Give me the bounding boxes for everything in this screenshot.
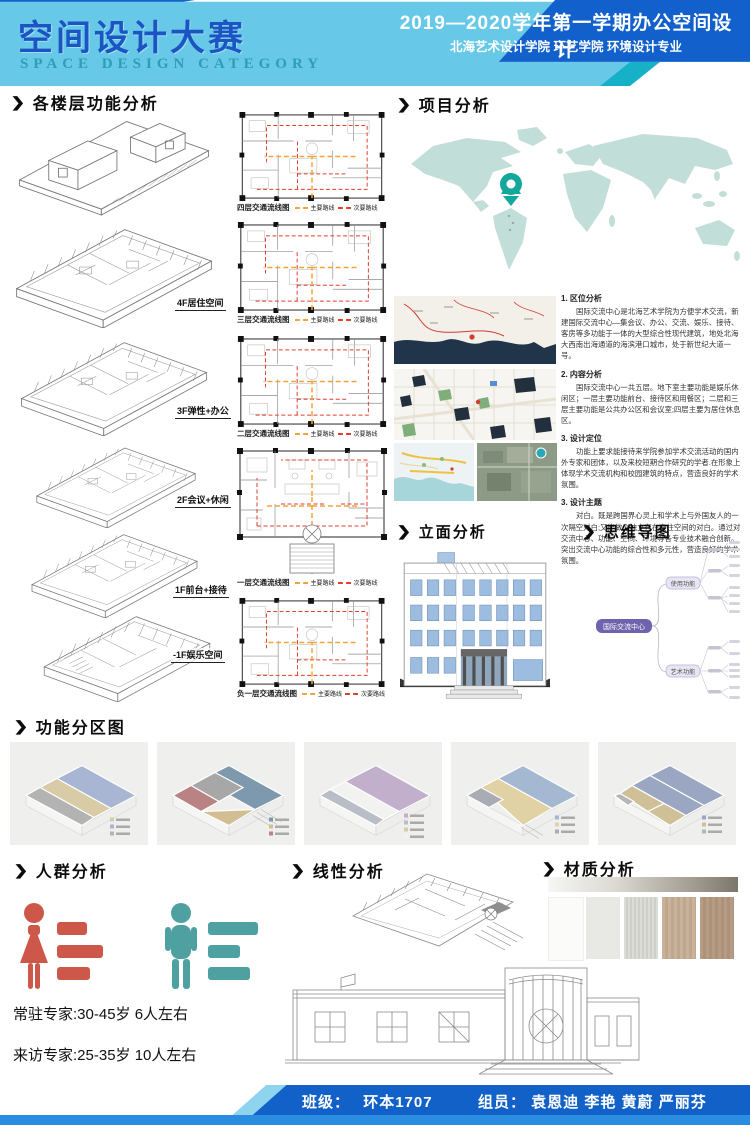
female-bar-1: [57, 922, 87, 935]
team-info: 组员： 袁恩迪 李艳 黄蔚 严丽芬: [478, 1091, 707, 1112]
section-elevation-header: ❯ 立面分析: [398, 521, 487, 542]
region-map: [394, 296, 556, 364]
analysis-heading-3: 3. 设计定位: [561, 433, 743, 444]
zoning-panel-2: [157, 742, 295, 845]
circulation-plan-2f: 二层交通流线图 主要路线 次要路线: [237, 336, 387, 439]
resident-experts-text: 常驻专家:30-45岁 6人左右: [13, 1003, 188, 1024]
class-info: 班级： 环本1707: [302, 1091, 433, 1112]
material-swatch-lightgray: [586, 897, 620, 959]
legend-secondary-route: 次要路线: [361, 689, 385, 698]
material-swatch-darkwood: [700, 897, 734, 959]
zoning-panel-3: [304, 742, 442, 845]
svg-text:使用功能: 使用功能: [671, 580, 696, 588]
section-title: 项目分析: [419, 92, 491, 116]
axonometric-roof-drawing: [8, 104, 220, 216]
satellite-map: [477, 443, 557, 501]
section-title: 功能分区图: [36, 714, 126, 738]
floor-label-2f: 2F会议+休闲: [175, 493, 231, 508]
legend-secondary-route: 次要路线: [354, 578, 378, 587]
team-value: 袁恩迪 李艳 黄蔚 严丽芬: [531, 1094, 707, 1111]
mindmap-diagram: 国际交流中心 使用功能 艺术功能: [588, 540, 748, 710]
section-title: 人群分析: [36, 858, 108, 882]
school-name: 北海艺术设计学院 环艺学院 环境设计专业: [396, 36, 736, 55]
material-swatch-graywood: [624, 897, 658, 959]
plan-label: 负一层交通流线图: [237, 688, 297, 699]
world-map: [397, 124, 741, 286]
male-person-icon: [162, 903, 200, 991]
secondary-route-dash-icon: [338, 582, 351, 584]
analysis-body-2: 国际交流中心一共五层。地下室主要功能是娱乐休闲区；一层主要功能前台、接待区和用餐…: [561, 382, 743, 426]
secondary-route-dash-icon: [338, 433, 351, 435]
zoning-panel-5: [598, 742, 736, 845]
analysis-body-1: 国际交流中心是北海艺术学院为方便学术交流，新建国际交流中心—集会议、办公、交流、…: [561, 306, 743, 362]
female-bar-3: [57, 967, 90, 980]
floor-label-1f: 1F前台+接待: [173, 583, 229, 598]
legend-secondary-route: 次要路线: [354, 429, 378, 438]
plan-label: 二层交通流线图: [237, 428, 290, 439]
main-route-dash-icon: [302, 693, 315, 695]
plan-label: 一层交通流线图: [237, 577, 290, 588]
male-bar-2: [208, 945, 240, 958]
mindmap-branch-bottom: 艺术功能: [666, 665, 700, 677]
circulation-plan-b1: 负一层交通流线图 主要路线 次要路线: [237, 598, 387, 699]
analysis-heading-4: 3. 设计主题: [561, 497, 743, 508]
poster-subtitle: SPACE DESIGN CATEGORY: [20, 56, 323, 73]
main-route-dash-icon: [295, 582, 308, 584]
poster-title: 空间设计大赛: [18, 10, 246, 61]
plan-label: 四层交通流线图: [237, 202, 290, 213]
section-project-header: ❯ 项目分析: [398, 92, 491, 116]
female-person-icon: [16, 903, 52, 991]
mindmap-branch-top: 使用功能: [666, 577, 700, 589]
svg-text:艺术功能: 艺术功能: [671, 668, 696, 676]
section-title: 思维导图: [604, 521, 672, 542]
entrance-elevation-drawing: [281, 960, 643, 1080]
legend-main-route: 主要路线: [311, 429, 335, 438]
class-label: 班级：: [302, 1094, 350, 1111]
circulation-plan-1f: 一层交通流线图 主要路线 次要路线: [237, 448, 387, 588]
secondary-route-dash-icon: [338, 207, 351, 209]
secondary-route-dash-icon: [345, 693, 358, 695]
floor-label-3f: 3F弹性+办公: [175, 404, 231, 419]
analysis-heading-1: 1. 区位分析: [561, 293, 743, 304]
chevron-right-icon: ❯: [397, 96, 412, 113]
material-gradient-bar: [548, 877, 738, 892]
floor-label-b1: -1F娱乐空间: [171, 648, 225, 663]
section-mindmap-header: ❯ 思维导图: [583, 521, 672, 542]
analysis-heading-2: 2. 内容分析: [561, 369, 743, 380]
male-bar-1: [208, 922, 258, 935]
main-route-dash-icon: [295, 433, 308, 435]
analysis-body-3: 功能上要求能接待来学院参加学术交流活动的国内外专家和团体，以及来校短期合作研究的…: [561, 446, 743, 490]
floor-label-4f: 4F居住空间: [175, 296, 226, 311]
main-route-dash-icon: [295, 319, 308, 321]
coastline-map: [394, 443, 474, 501]
footer-bottom-strip: [0, 1115, 750, 1125]
header-banner: 空间设计大赛 SPACE DESIGN CATEGORY 2019—2020学年…: [0, 0, 750, 86]
class-value: 环本1707: [363, 1094, 432, 1111]
legend-main-route: 主要路线: [311, 315, 335, 324]
material-swatch-white: [548, 897, 584, 961]
street-map: [394, 369, 556, 440]
poster: 空间设计大赛 SPACE DESIGN CATEGORY 2019—2020学年…: [0, 0, 750, 1125]
section-title: 立面分析: [419, 521, 487, 542]
chevron-right-icon: ❯: [14, 718, 29, 735]
svg-text:国际交流中心: 国际交流中心: [603, 622, 645, 631]
zoning-panel-1: [10, 742, 148, 845]
material-swatch-tanwood: [662, 897, 696, 959]
chevron-right-icon: ❯: [582, 523, 597, 540]
plan-label: 三层交通流线图: [237, 314, 290, 325]
team-label: 组员：: [478, 1094, 526, 1111]
chevron-right-icon: ❯: [542, 860, 557, 877]
mindmap-center-node: 国际交流中心: [596, 619, 652, 633]
section-zoning-header: ❯ 功能分区图: [15, 714, 126, 738]
legend-main-route: 主要路线: [311, 203, 335, 212]
main-route-dash-icon: [295, 207, 308, 209]
building-elevation-drawing: [400, 546, 550, 706]
chevron-right-icon: ❯: [291, 862, 306, 879]
zoning-panel-4: [451, 742, 589, 845]
female-bar-2: [57, 945, 103, 958]
axonometric-3f-drawing: [8, 324, 220, 436]
legend-main-route: 主要路线: [311, 578, 335, 587]
circulation-plan-3f: 三层交通流线图 主要路线 次要路线: [237, 222, 387, 325]
footer-banner: 班级： 环本1707 组员： 袁恩迪 李艳 黄蔚 严丽芬: [0, 1085, 750, 1125]
linear-axonometric-sketch: [335, 854, 530, 962]
chevron-right-icon: ❯: [14, 862, 29, 879]
section-people-header: ❯ 人群分析: [15, 858, 108, 882]
axonometric-2f-drawing: [16, 432, 216, 528]
legend-secondary-route: 次要路线: [354, 315, 378, 324]
legend-secondary-route: 次要路线: [354, 203, 378, 212]
secondary-route-dash-icon: [338, 319, 351, 321]
chevron-right-icon: ❯: [397, 523, 412, 540]
location-pin-icon: [500, 173, 522, 206]
circulation-plan-4f: 四层交通流线图 主要路线 次要路线: [237, 112, 387, 213]
visiting-experts-text: 来访专家:25-35岁 10人左右: [13, 1044, 196, 1065]
male-bar-3: [208, 967, 250, 980]
legend-main-route: 主要路线: [318, 689, 342, 698]
